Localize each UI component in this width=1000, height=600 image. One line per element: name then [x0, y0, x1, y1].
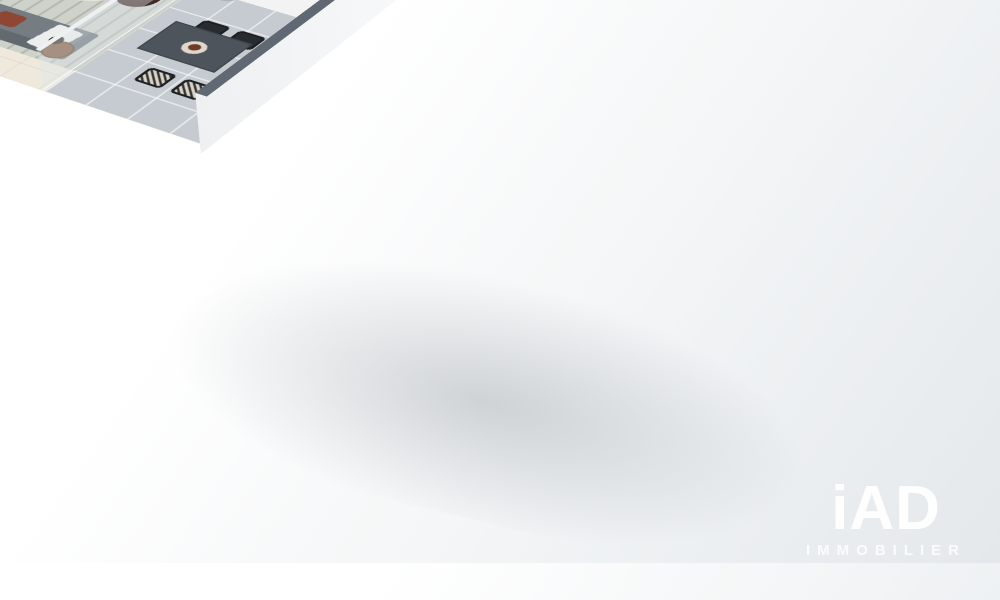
watermark-brand: iAD	[806, 478, 966, 540]
watermark-tagline: IMMOBILIER	[806, 542, 966, 559]
agency-watermark: iAD IMMOBILIER	[806, 478, 966, 559]
apartment-plane: THINK LESS DO MORE	[0, 0, 440, 147]
